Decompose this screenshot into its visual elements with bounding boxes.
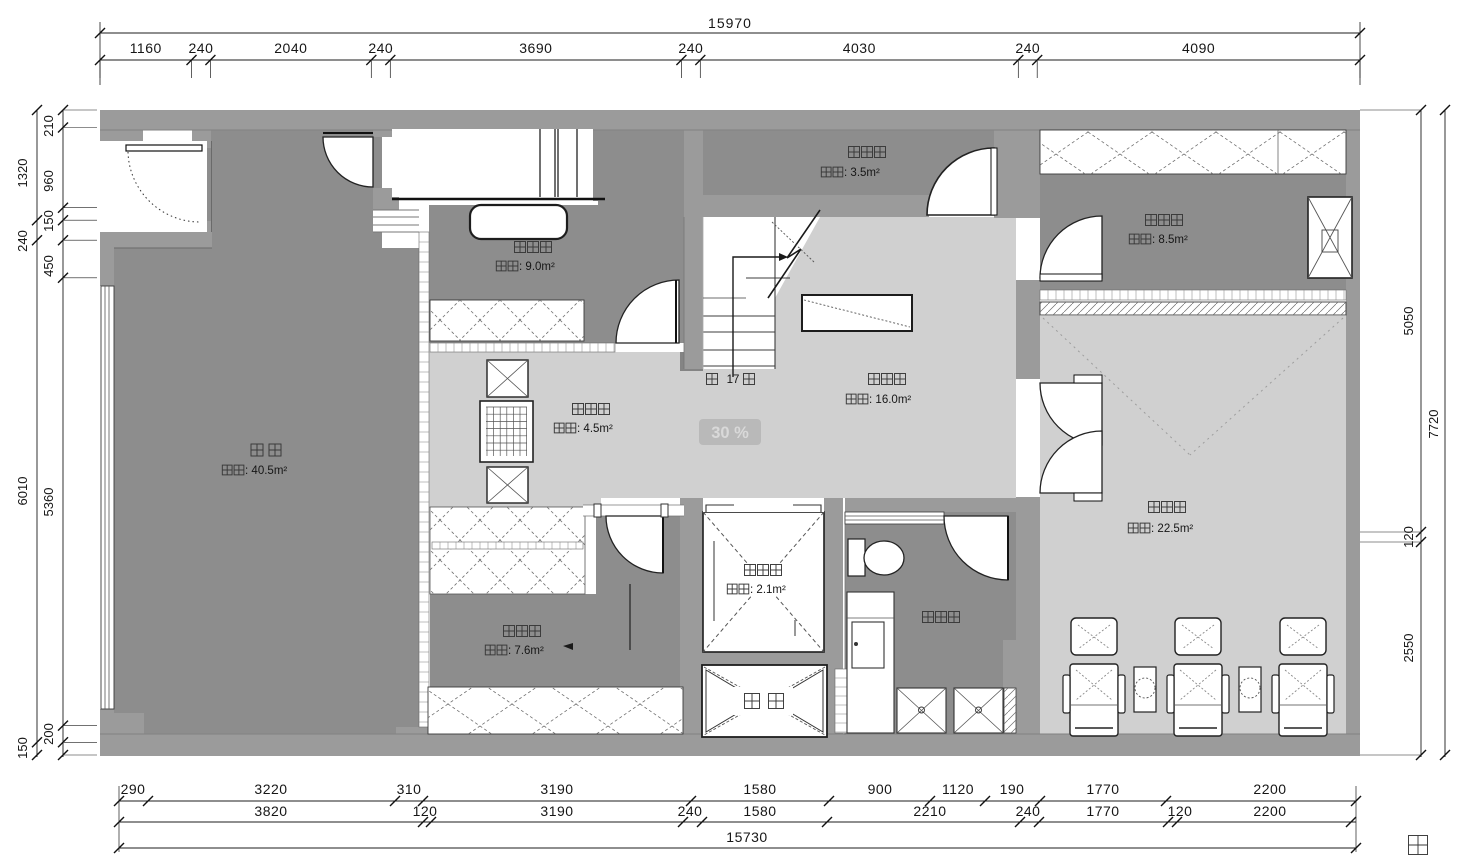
svg-text:1770: 1770 [1086,781,1119,797]
svg-text:: 22.5m²: : 22.5m² [1151,523,1193,535]
svg-text:1580: 1580 [743,781,776,797]
svg-text:4030: 4030 [843,40,876,56]
svg-text:1770: 1770 [1086,803,1119,819]
svg-text:150: 150 [41,210,56,232]
svg-text:5360: 5360 [41,488,56,517]
svg-text:2210: 2210 [913,803,946,819]
svg-text:30 %: 30 % [711,424,749,442]
svg-text:: 7.6m²: : 7.6m² [508,645,544,657]
svg-text:15970: 15970 [708,15,752,31]
svg-text:240: 240 [678,803,703,819]
svg-text:17: 17 [727,374,740,386]
svg-text:120: 120 [1168,803,1193,819]
svg-text:190: 190 [1000,781,1025,797]
svg-text:450: 450 [41,255,56,277]
svg-text:240: 240 [678,40,703,56]
svg-text:1320: 1320 [15,159,30,188]
svg-text:3190: 3190 [540,803,573,819]
svg-text:: 2.1m²: : 2.1m² [750,584,786,596]
svg-text:3190: 3190 [540,781,573,797]
svg-text:200: 200 [41,723,56,745]
svg-text:900: 900 [868,781,893,797]
svg-text:240: 240 [15,230,30,252]
svg-text:3820: 3820 [254,803,287,819]
svg-text:240: 240 [368,40,393,56]
svg-text:: 8.5m²: : 8.5m² [1152,234,1188,246]
svg-text:240: 240 [189,40,214,56]
svg-text:: 3.5m²: : 3.5m² [844,167,880,179]
svg-text:1160: 1160 [130,40,162,56]
svg-text:240: 240 [1016,803,1041,819]
svg-text:: 40.5m²: : 40.5m² [245,465,287,477]
svg-text:1580: 1580 [743,803,776,819]
svg-text:3690: 3690 [519,40,552,56]
svg-text:1120: 1120 [942,781,974,797]
svg-text:7720: 7720 [1426,410,1441,439]
svg-text:120: 120 [1401,526,1416,548]
svg-text:: 16.0m²: : 16.0m² [869,394,911,406]
svg-text:2550: 2550 [1401,634,1416,663]
svg-text:4090: 4090 [1182,40,1215,56]
svg-text:2200: 2200 [1253,803,1286,819]
svg-text:960: 960 [41,170,56,192]
svg-text:2040: 2040 [274,40,307,56]
svg-text:290: 290 [121,781,146,797]
svg-text:3220: 3220 [254,781,287,797]
svg-text:310: 310 [397,781,422,797]
svg-text:: 9.0m²: : 9.0m² [519,261,555,273]
svg-text:15730: 15730 [726,829,767,845]
svg-text:210: 210 [41,115,56,137]
svg-text:6010: 6010 [15,477,30,506]
svg-text:150: 150 [15,737,30,759]
svg-text:2200: 2200 [1253,781,1286,797]
svg-text:: 4.5m²: : 4.5m² [577,423,613,435]
svg-text:5050: 5050 [1401,307,1416,336]
svg-text:120: 120 [413,803,438,819]
svg-text:240: 240 [1015,40,1040,56]
